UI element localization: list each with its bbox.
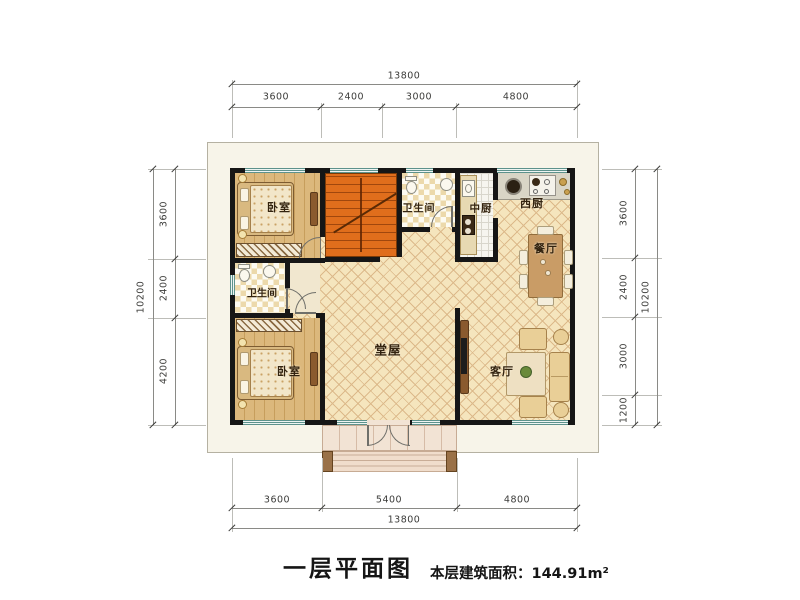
burner-icon xyxy=(465,228,471,234)
dim-line xyxy=(175,169,176,425)
sofa xyxy=(519,328,547,350)
page-title: 一层平面图 xyxy=(283,549,413,583)
room-label-bedroom-top: 卧室 xyxy=(267,199,291,215)
floor-area-text: 本层建筑面积：144.91m² xyxy=(430,562,609,583)
dim-ext xyxy=(577,80,578,138)
wall xyxy=(455,257,498,262)
dim-label: 3000 xyxy=(619,343,630,369)
window xyxy=(230,275,235,295)
nightstand-lamp xyxy=(238,230,247,239)
burner-icon xyxy=(544,179,550,185)
pillow xyxy=(240,216,249,230)
dim-label: 3600 xyxy=(619,200,630,226)
dim-ext xyxy=(232,458,233,532)
sink-basin-icon xyxy=(465,184,472,193)
wall xyxy=(320,173,325,237)
room-label-chinese-kitchen: 中厨 xyxy=(470,201,493,216)
room-label-hall: 堂屋 xyxy=(374,340,401,359)
dim-ext xyxy=(321,103,322,138)
wall xyxy=(402,227,430,232)
porch-post xyxy=(322,451,333,472)
door-leaf xyxy=(286,288,288,309)
chair xyxy=(519,250,528,265)
sink-icon xyxy=(440,178,453,191)
room-label-bath-left: 卫生间 xyxy=(247,285,277,300)
window xyxy=(245,168,305,173)
toilet-icon xyxy=(239,269,250,282)
window xyxy=(330,168,378,173)
dim-ext xyxy=(382,103,383,138)
dim-ext xyxy=(148,259,206,260)
wall xyxy=(285,263,290,288)
side-table xyxy=(553,402,569,418)
burner-icon xyxy=(544,189,549,194)
plate-icon xyxy=(545,270,551,276)
floor-plan-page: 卧室 卫生间 中厨 西厨 餐厅 卫生间 卧室 堂屋 客厅 13800 3600 … xyxy=(0,0,800,600)
dim-ext xyxy=(457,458,458,512)
burner-icon xyxy=(532,178,540,186)
dim-ext xyxy=(322,458,323,512)
wardrobe xyxy=(236,319,302,332)
dim-label: 4200 xyxy=(159,358,170,384)
porch-post xyxy=(446,451,457,472)
plant-icon xyxy=(520,366,532,378)
dim-label: 3000 xyxy=(406,92,432,103)
room-label-living: 客厅 xyxy=(490,363,514,379)
wall xyxy=(325,257,380,262)
dim-label: 4800 xyxy=(504,495,530,506)
pillow xyxy=(240,188,249,202)
dim-label: 2400 xyxy=(159,275,170,301)
dim-ext xyxy=(232,80,233,138)
dim-ext xyxy=(148,425,206,426)
dim-label: 13800 xyxy=(388,515,421,526)
door-leaf xyxy=(451,206,453,227)
wall xyxy=(285,309,290,313)
door-leaf xyxy=(408,425,410,446)
dresser xyxy=(310,192,318,226)
dresser xyxy=(310,352,318,386)
dim-label: 4800 xyxy=(503,92,529,103)
sink-icon xyxy=(564,189,570,195)
sofa xyxy=(519,396,547,418)
plate-icon xyxy=(540,259,546,265)
room-label-bedroom-bottom: 卧室 xyxy=(277,363,301,379)
wall xyxy=(235,258,325,263)
chair xyxy=(519,274,528,289)
door-leaf xyxy=(295,312,316,314)
dim-label: 13800 xyxy=(388,71,421,82)
dim-label: 3600 xyxy=(159,201,170,227)
tv-icon xyxy=(461,338,467,374)
chair xyxy=(564,250,573,265)
dim-ext xyxy=(577,458,578,532)
nightstand-lamp xyxy=(238,400,247,409)
nightstand-lamp xyxy=(238,174,247,183)
dim-line xyxy=(232,528,577,529)
pillow xyxy=(240,380,249,394)
window xyxy=(243,420,305,425)
room-label-bath-top: 卫生间 xyxy=(403,200,436,215)
pillow xyxy=(240,352,249,366)
wall xyxy=(320,318,325,420)
dim-label: 10200 xyxy=(641,281,652,314)
wok-icon xyxy=(505,178,522,195)
room-label-western-kitchen: 西厨 xyxy=(520,195,544,211)
door-leaf xyxy=(320,237,322,258)
wall xyxy=(493,218,498,257)
dim-line xyxy=(657,169,658,425)
dim-line xyxy=(232,84,577,85)
sink-icon xyxy=(263,265,276,278)
dim-ext xyxy=(148,169,206,170)
burner-icon xyxy=(533,189,538,194)
dim-label: 2400 xyxy=(338,92,364,103)
dim-label: 3600 xyxy=(263,92,289,103)
wardrobe xyxy=(236,243,302,257)
window xyxy=(406,168,433,173)
chair xyxy=(537,226,554,235)
dim-line xyxy=(153,169,154,425)
dim-line xyxy=(635,169,636,425)
nightstand-lamp xyxy=(238,338,247,347)
dim-ext xyxy=(148,318,206,319)
dim-line xyxy=(232,508,577,509)
chair xyxy=(564,274,573,289)
dim-label: 2400 xyxy=(619,274,630,300)
dim-label: 5400 xyxy=(376,495,402,506)
dim-line xyxy=(232,107,577,108)
sofa-seam xyxy=(551,376,568,377)
sink-icon xyxy=(559,178,567,186)
side-table xyxy=(553,329,569,345)
dim-label: 1200 xyxy=(619,397,630,423)
dim-ext xyxy=(456,103,457,138)
chair xyxy=(537,297,554,306)
door-leaf xyxy=(367,425,369,446)
toilet-icon xyxy=(406,181,417,194)
dim-label: 10200 xyxy=(136,281,147,314)
wall xyxy=(397,173,402,257)
dim-label: 3600 xyxy=(264,495,290,506)
burner-icon xyxy=(465,219,471,225)
window xyxy=(512,420,568,425)
porch-steps xyxy=(322,451,457,472)
room-label-dining: 餐厅 xyxy=(534,240,558,256)
wall xyxy=(235,313,293,318)
